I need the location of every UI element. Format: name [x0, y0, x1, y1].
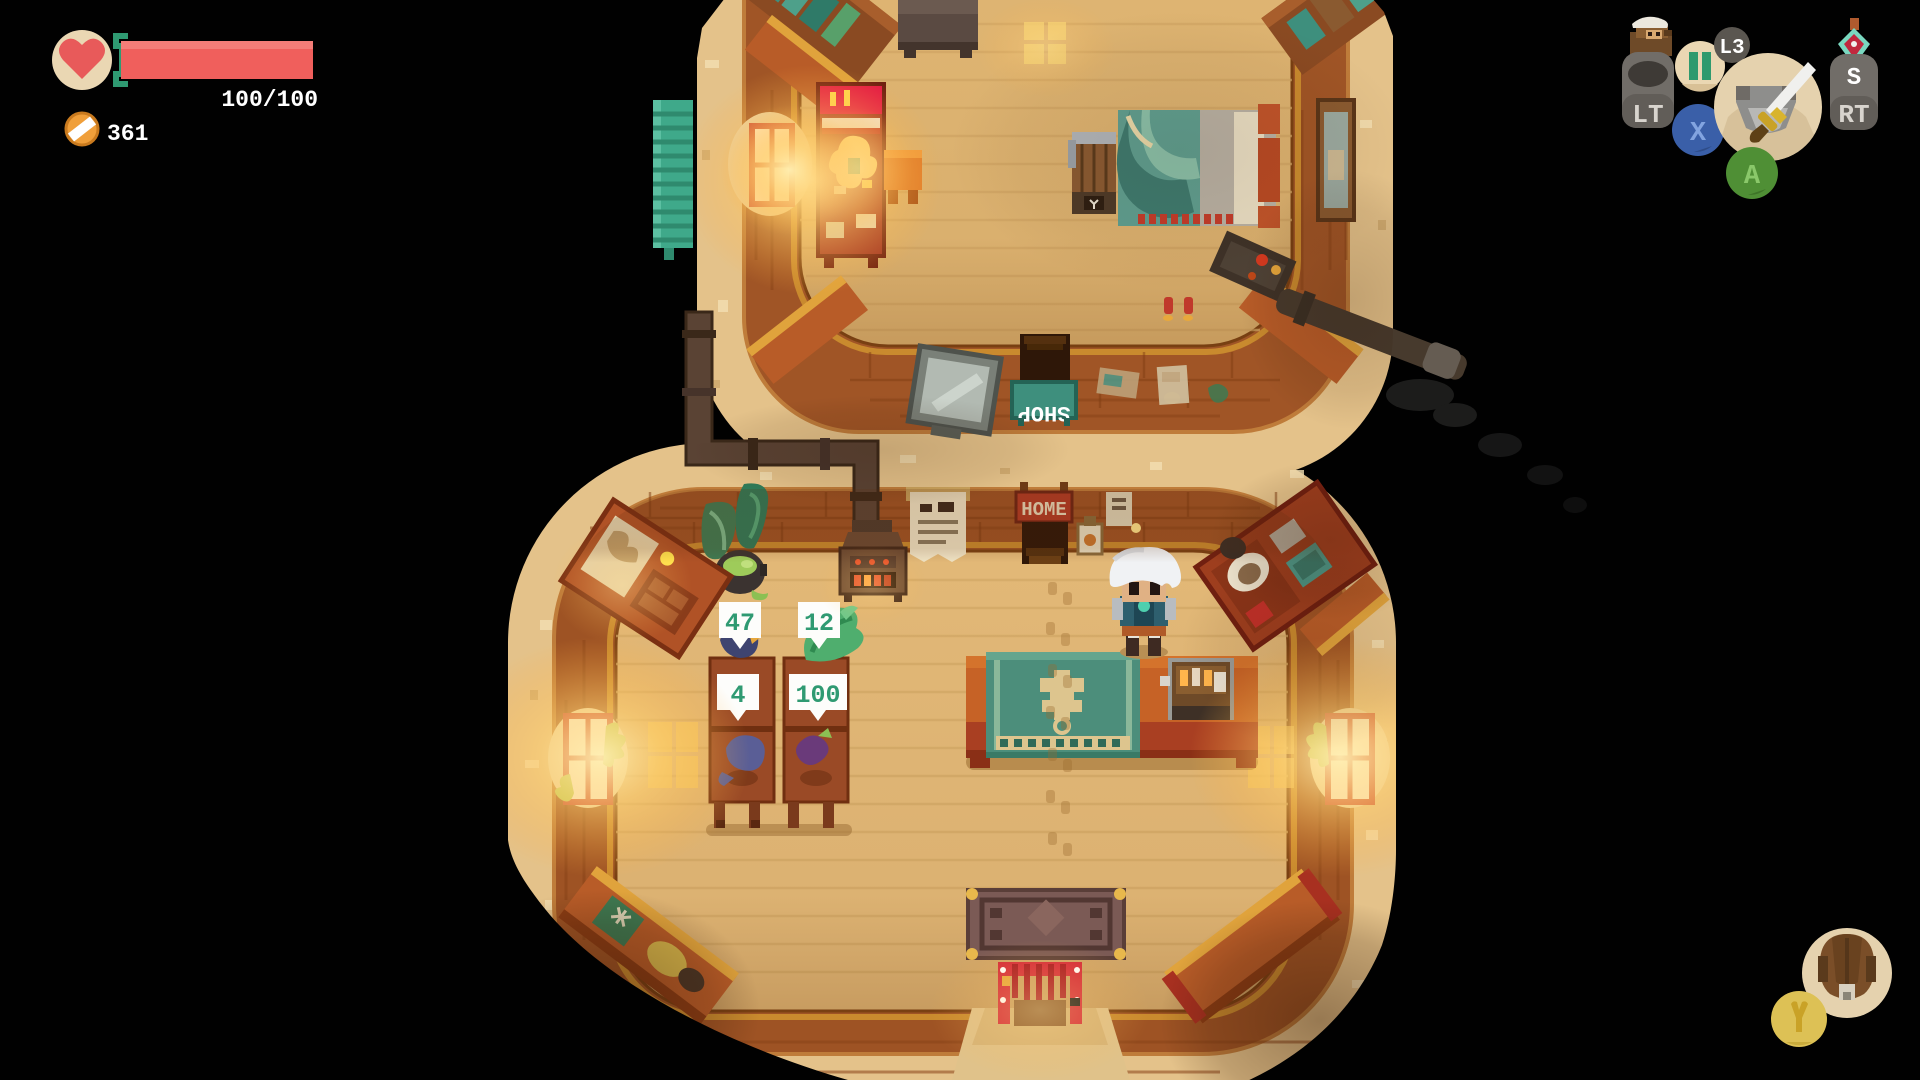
svg-text:LT: LT	[1632, 100, 1663, 130]
svg-text:X: X	[1690, 119, 1707, 149]
svg-text:RT: RT	[1838, 100, 1869, 130]
svg-text:361: 361	[107, 121, 148, 147]
svg-text:S: S	[1847, 65, 1861, 92]
svg-text:A: A	[1744, 162, 1761, 192]
svg-text:L3: L3	[1719, 37, 1744, 60]
svg-text:100/100: 100/100	[221, 87, 318, 113]
